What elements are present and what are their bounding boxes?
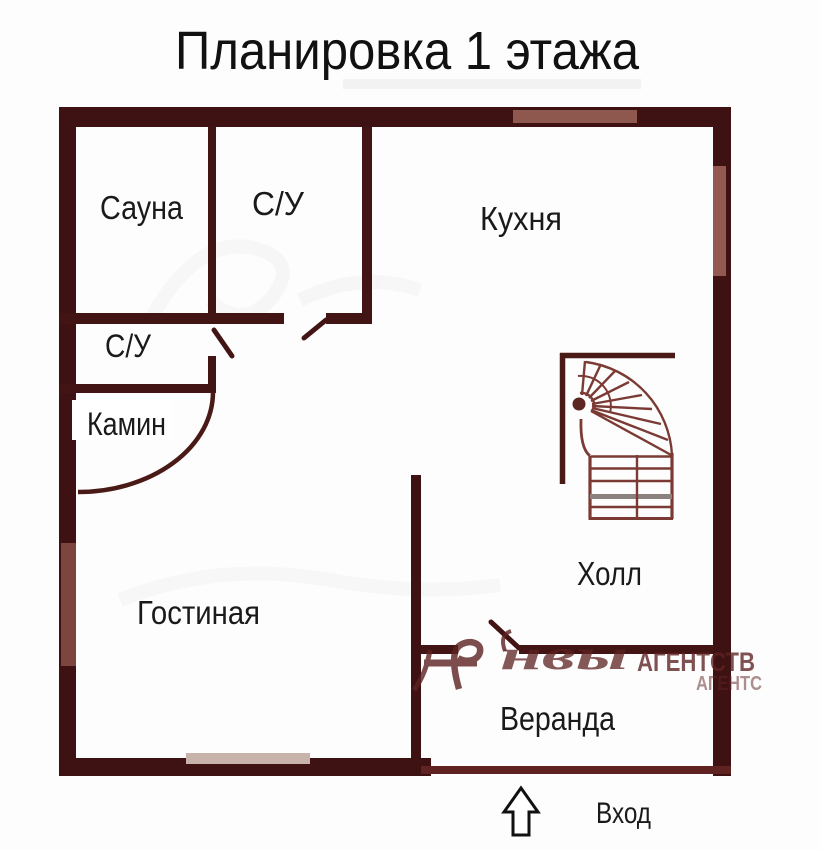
svg-text:С/У: С/У [105, 328, 152, 364]
svg-text:Вход: Вход [596, 797, 651, 830]
svg-text:Кухня: Кухня [480, 200, 562, 237]
svg-text:Гостиная: Гостиная [137, 594, 260, 631]
svg-text:Сауна: Сауна [100, 189, 184, 226]
svg-text:Планировка 1 этажа: Планировка 1 этажа [175, 21, 640, 81]
svg-text:Холл: Холл [577, 555, 642, 592]
svg-text:Веранда: Веранда [500, 700, 616, 737]
svg-text:Камин: Камин [87, 406, 166, 442]
svg-text:нвы: нвы [500, 633, 628, 679]
svg-text:С/У: С/У [252, 185, 305, 222]
svg-text:АГЕНТС: АГЕНТС [696, 673, 762, 695]
